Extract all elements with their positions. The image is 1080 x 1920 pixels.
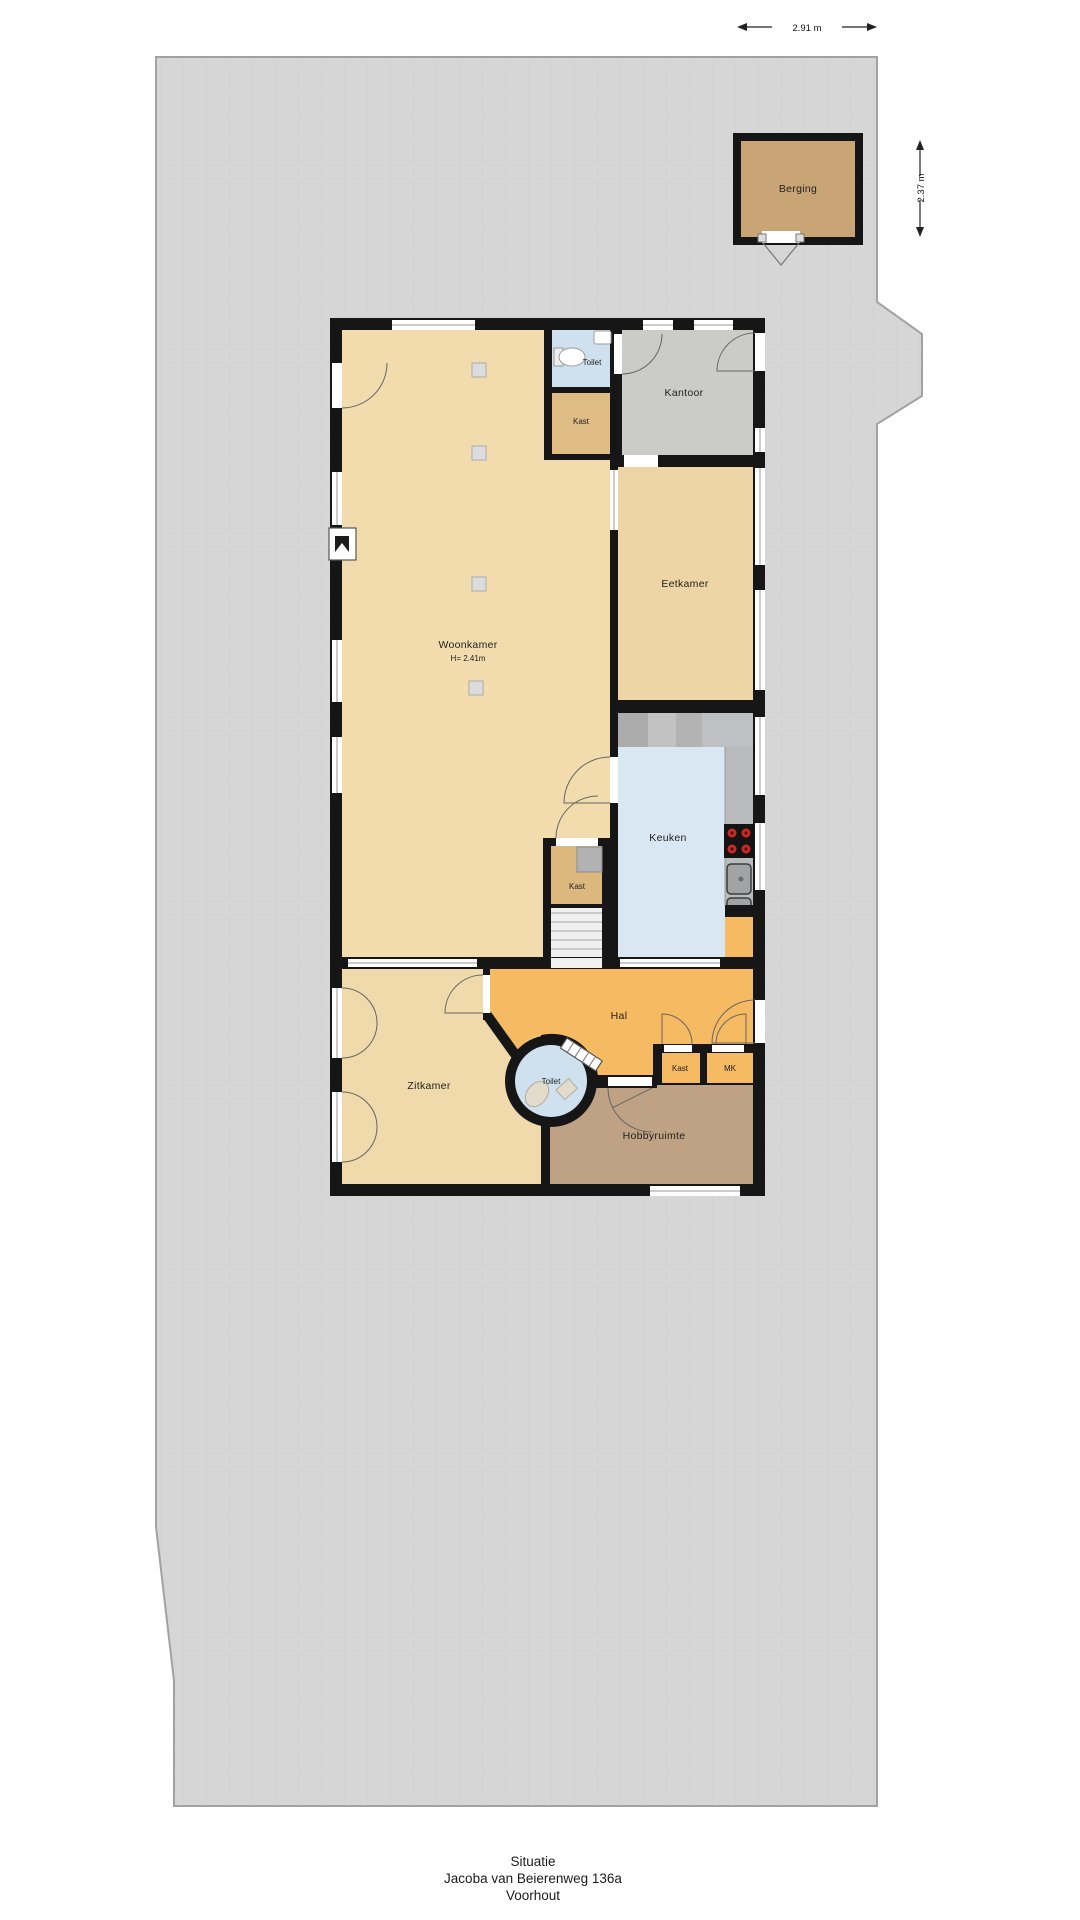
room-berging-label: Berging: [779, 183, 817, 195]
appliance-box: [577, 847, 602, 872]
room-kast-small-label: Kast: [672, 1064, 689, 1073]
dimension-top: 2.91 m: [737, 23, 877, 34]
room-mk-label: MK: [724, 1064, 737, 1073]
caption-city: Voorhout: [506, 1888, 560, 1903]
floorplan-page: 2.91 m 2.37 m Berging: [0, 0, 1080, 1920]
caption-address: Jacoba van Beierenweg 136a: [444, 1871, 622, 1886]
toilet-fixture-icon: [554, 348, 585, 366]
room-kantoor-label: Kantoor: [665, 387, 704, 399]
room-kast-mid-label: Kast: [569, 882, 586, 891]
room-eetkamer-label: Eetkamer: [661, 578, 709, 590]
main-building: Toilet Kast Kantoor Woonkamer H= 2.41m E…: [329, 318, 765, 1196]
caption-title: Situatie: [510, 1854, 555, 1869]
cooktop-icon: [724, 824, 754, 858]
room-woonkamer-height: H= 2.41m: [451, 654, 486, 663]
fireplace-icon: [329, 528, 356, 560]
room-keuken-label: Keuken: [649, 832, 686, 844]
room-zitkamer-label: Zitkamer: [407, 1080, 450, 1092]
room-hal-label: Hal: [611, 1010, 628, 1022]
bottom-wall-windows: [650, 1186, 740, 1196]
caption: Situatie Jacoba van Beierenweg 136a Voor…: [444, 1854, 622, 1903]
sink-icon: [594, 331, 611, 344]
dimension-right: 2.37 m: [916, 140, 927, 237]
room-toilet-round-label: Toilet: [542, 1077, 561, 1086]
room-hobbyruimte-label: Hobbyruimte: [623, 1130, 686, 1142]
dimension-right-label: 2.37 m: [916, 173, 927, 202]
room-toilet-top-label: Toilet: [583, 358, 602, 367]
floorplan-drawing: 2.91 m 2.37 m Berging: [0, 0, 1080, 1920]
room-woonkamer-label: Woonkamer: [438, 639, 497, 651]
dimension-top-label: 2.91 m: [792, 23, 821, 34]
staircase: [551, 908, 602, 963]
room-kast-top-label: Kast: [573, 417, 590, 426]
